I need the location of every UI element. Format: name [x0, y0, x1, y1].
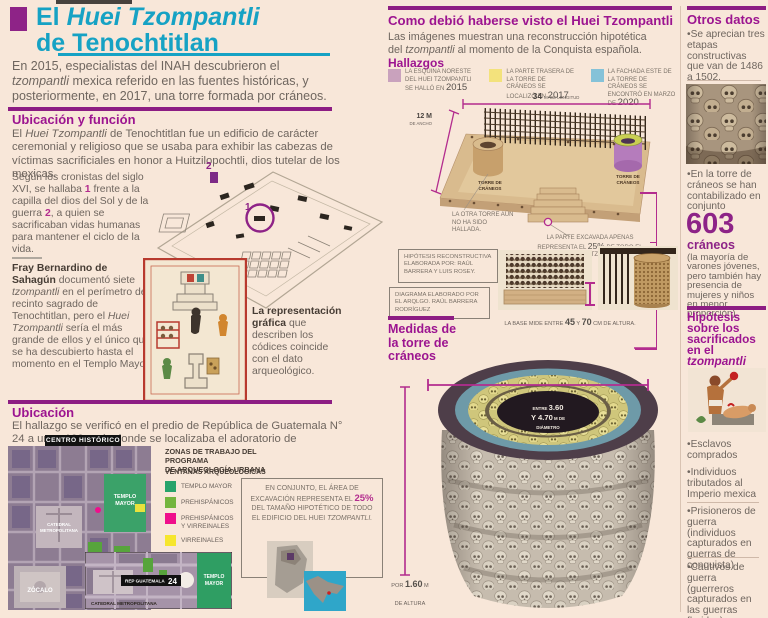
thin-divider: [687, 502, 759, 503]
base-caption: LA BASE MIDE ENTRE 45 Y 70 CM DE ALTURA.: [470, 312, 670, 330]
title-square-icon: [10, 7, 27, 31]
heading-hallazgos: Hallazgos: [388, 56, 444, 70]
svg-text:METROPOLITANA: METROPOLITANA: [40, 528, 79, 533]
heading-reconstruction: Como debió haberse visto el Huei Tzompan…: [388, 13, 673, 28]
rack-render: [498, 250, 592, 310]
svg-text:MAYOR: MAYOR: [205, 581, 224, 587]
length-dimension-line: [463, 99, 650, 109]
tower-right: [614, 134, 642, 172]
heading-ubicacion: Ubicación: [12, 405, 74, 420]
map-label-catedral: CATEDRAL: [47, 522, 71, 527]
svg-text:CRÁNEOS: CRÁNEOS: [617, 179, 640, 185]
legend-chip: [165, 535, 176, 546]
title-pre: El: [36, 3, 67, 31]
inset-label-templo: TEMPLO: [204, 574, 225, 580]
infographic-page: El Huei Tzompantli de Tenochtitlan En 20…: [0, 0, 768, 618]
codices-note: La representación gráfica que describen …: [252, 306, 342, 378]
skull-count-unit: cráneos: [687, 238, 735, 252]
site-marker: [287, 553, 294, 560]
legend-chip: [165, 481, 176, 492]
svg-text:DE ANCHO: DE ANCHO: [410, 121, 433, 126]
hipotesis-bullet: •Cautivos de guerra (guerreros capturado…: [687, 563, 766, 618]
column-divider: [680, 6, 681, 612]
connector-line: [650, 242, 657, 243]
legend-chip: [165, 497, 176, 508]
thin-divider: [687, 557, 759, 558]
note-other-tower: LA OTRA TORRE AÚN NO HA SIDO HALLADA.: [452, 212, 516, 235]
sahagun-text: Fray Bernardino de Sahagún documentó sie…: [12, 263, 153, 371]
small-divider: [12, 257, 42, 259]
skull-photo: [686, 84, 766, 164]
hallazgo-chip: [591, 69, 604, 82]
tower-base-render: [598, 246, 678, 310]
marker-1-label: 1: [245, 202, 251, 213]
hallazgo-chip: [489, 69, 502, 82]
heading-hipotesis: Hipótesis sobre los sacrificados en el t…: [687, 312, 763, 367]
fact-contabilizado: •En la torre de cráneos se han contabili…: [687, 170, 766, 213]
marker-2-label: 2: [206, 161, 212, 172]
length-dimension-label: 34M. DE LONGITUD: [533, 91, 580, 101]
section-rule: [388, 6, 672, 10]
heading-ubicacion-funcion: Ubicación y función: [12, 112, 136, 127]
tower-left-label: TORRE DE: [478, 180, 502, 185]
section-rule: [687, 6, 766, 10]
skull-count: 603: [686, 208, 734, 241]
section-rule: [8, 400, 332, 404]
hipotesis-bullet: •Esclavos comprados: [687, 440, 766, 462]
intro-paragraph: En 2015, especialistas del INAH descubri…: [12, 59, 334, 104]
inset-label-catedral: CATEDRAL METROPOLITANA: [91, 601, 158, 606]
section-rule: [8, 107, 332, 111]
section-rule: [687, 306, 766, 310]
marker-2-structure: [210, 172, 218, 183]
site-marker: [327, 591, 331, 595]
section-rule: [388, 316, 454, 320]
map-legend-subtitle: VENTANAS ARQUEOLÓGICAS: [165, 469, 266, 476]
map-label-zocalo: ZÓCALO: [27, 586, 53, 594]
svg-text:MAYOR: MAYOR: [115, 501, 135, 507]
svg-text:DIÁMETRO: DIÁMETRO: [536, 425, 560, 430]
height-dimension-line: [400, 387, 410, 575]
callout-marker: [544, 218, 551, 225]
tower-right-label: TORRE DE: [616, 174, 640, 179]
thin-divider: [687, 80, 761, 81]
mexico-minimap: [304, 571, 346, 611]
title-italic: Huei Tzompantli: [67, 3, 260, 31]
heart-icon: [730, 372, 738, 380]
sacrifice-illustration: [688, 368, 766, 432]
reconstruction-intro: Las imágenes muestran una reconstrucción…: [388, 31, 650, 56]
heading-otros-datos: Otros datos: [687, 12, 760, 27]
width-dimension-label: 12 M: [416, 113, 432, 120]
connector-line: [640, 192, 657, 194]
page-title: El Huei Tzompantli de Tenochtitlan: [36, 4, 366, 56]
fact-etapas: •Se aprecian tres etapas constructivas q…: [687, 30, 766, 84]
codex-illustration: [143, 258, 247, 402]
cronistas-text: Según los cronistas del siglo XVI, se ha…: [12, 172, 153, 256]
inset-map: REP GUATEMALA 24 CATEDRAL METROPOLITANA …: [85, 552, 232, 609]
title-underline: [58, 53, 330, 56]
legend-chip: [165, 513, 176, 524]
platform-reconstruction: 34M. DE LONGITUD 12 M DE ANCHO: [388, 88, 678, 238]
svg-text:CRÁNEOS: CRÁNEOS: [479, 185, 502, 191]
centro-historico-label: CENTRO HISTÓRICO: [45, 435, 121, 446]
map-label-templo: TEMPLO: [114, 494, 136, 500]
inset-label-rep-guatemala: REP GUATEMALA: [125, 579, 165, 584]
hallazgo-chip: [388, 69, 401, 82]
height-label: POR 1.60 MDE ALTURA: [384, 574, 436, 610]
credit-hypothesis: HIPÓTESIS RECONSTRUCTIVA ELABORADA POR: …: [398, 249, 498, 283]
tower-left: [473, 138, 503, 177]
skull-tower-illustration: ENTRE 3.60 Y 4.70 M DE DIÁMETRO: [398, 330, 680, 616]
base-height-marker: [583, 280, 597, 308]
hipotesis-bullet: •Individuos tributados al Imperio mexica: [687, 468, 766, 500]
svg-text:24: 24: [168, 577, 177, 586]
